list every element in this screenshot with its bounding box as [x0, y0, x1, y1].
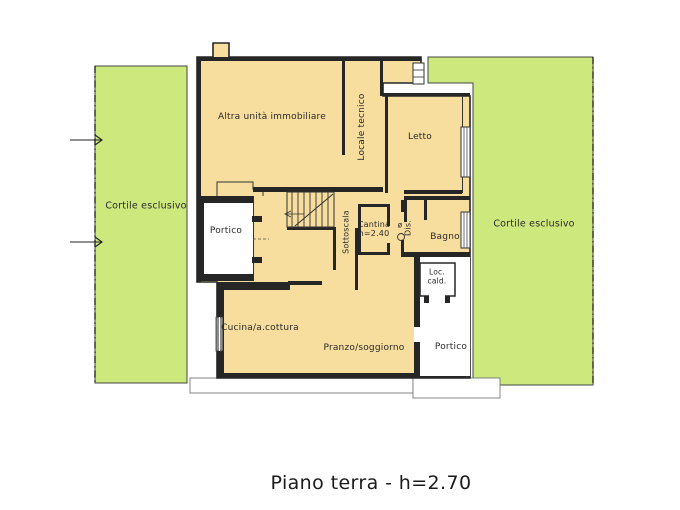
label-cortile-left: Cortile esclusivo	[105, 202, 186, 213]
wall-bagno-divider	[424, 200, 427, 220]
label-letto: Letto	[408, 132, 432, 142]
wall-cantina-right-lower	[387, 243, 390, 255]
wall-dis-stub-top	[401, 200, 404, 212]
label-locale-tecnico: Locale tecnico	[357, 93, 367, 160]
wall-cantina-top	[358, 204, 390, 207]
wall-bagno-left-stub	[404, 200, 407, 222]
label-cantina-name: Cantina	[358, 220, 390, 229]
courtyard-left	[95, 66, 187, 383]
wall-locale-tecnico-left	[342, 57, 345, 155]
loc-cald-door-gap	[429, 294, 445, 298]
wall-bagno-top	[404, 196, 470, 200]
label-cucina: Cucina/a.cottura	[221, 323, 299, 333]
pavement-strip	[190, 378, 500, 398]
label-portico-right: Portico	[435, 342, 467, 352]
window-bagno	[461, 212, 470, 248]
label-loc-cald-line2: cald.	[428, 277, 447, 286]
label-portico-left: Portico	[210, 226, 242, 236]
label-cantina-height: h=2.40	[358, 229, 390, 238]
wall-letto-left	[385, 96, 388, 193]
wall-kitchen-top-step	[288, 281, 322, 285]
wall-divider-horizontal	[253, 187, 383, 192]
label-pranzo: Pranzo/soggiorno	[323, 343, 404, 353]
label-sottoscala: Sottoscala	[341, 210, 350, 254]
entry-arrow-top	[70, 135, 102, 145]
pillar-mark	[252, 216, 262, 222]
window-letto	[461, 127, 470, 177]
label-loc-cald: Loc. cald.	[428, 268, 447, 285]
floor-plan-drawing	[0, 0, 680, 510]
wall-under-stairs-v	[333, 227, 336, 270]
pillar-mark	[252, 257, 262, 263]
label-flue-symbol: ø	[398, 222, 403, 231]
wall-locale-tecnico-right	[380, 57, 383, 96]
entry-arrow-bottom	[70, 237, 102, 247]
wall-letto-bottom	[404, 190, 462, 194]
door-gap-pranzo-portico	[414, 327, 420, 342]
wall-pranzo-portico	[414, 257, 420, 378]
window-locale-tecnico	[413, 63, 424, 84]
wall-kitchen-top-left	[217, 282, 290, 290]
plan-caption: Piano terra - h=2.70	[271, 473, 472, 495]
wall-dis-stub-bottom	[401, 240, 404, 257]
label-altra-unita: Altra unità immobiliare	[218, 112, 326, 122]
label-cortile-right: Cortile esclusivo	[493, 220, 574, 231]
stairs	[285, 192, 334, 227]
label-dis: Dis.	[403, 220, 412, 236]
label-cantina: Cantina h=2.40	[358, 220, 390, 238]
wall-cantina-bottom	[358, 252, 390, 255]
label-bagno: Bagno	[430, 232, 460, 242]
floor-plan-page: Cortile esclusivo Cortile esclusivo Altr…	[0, 0, 680, 510]
